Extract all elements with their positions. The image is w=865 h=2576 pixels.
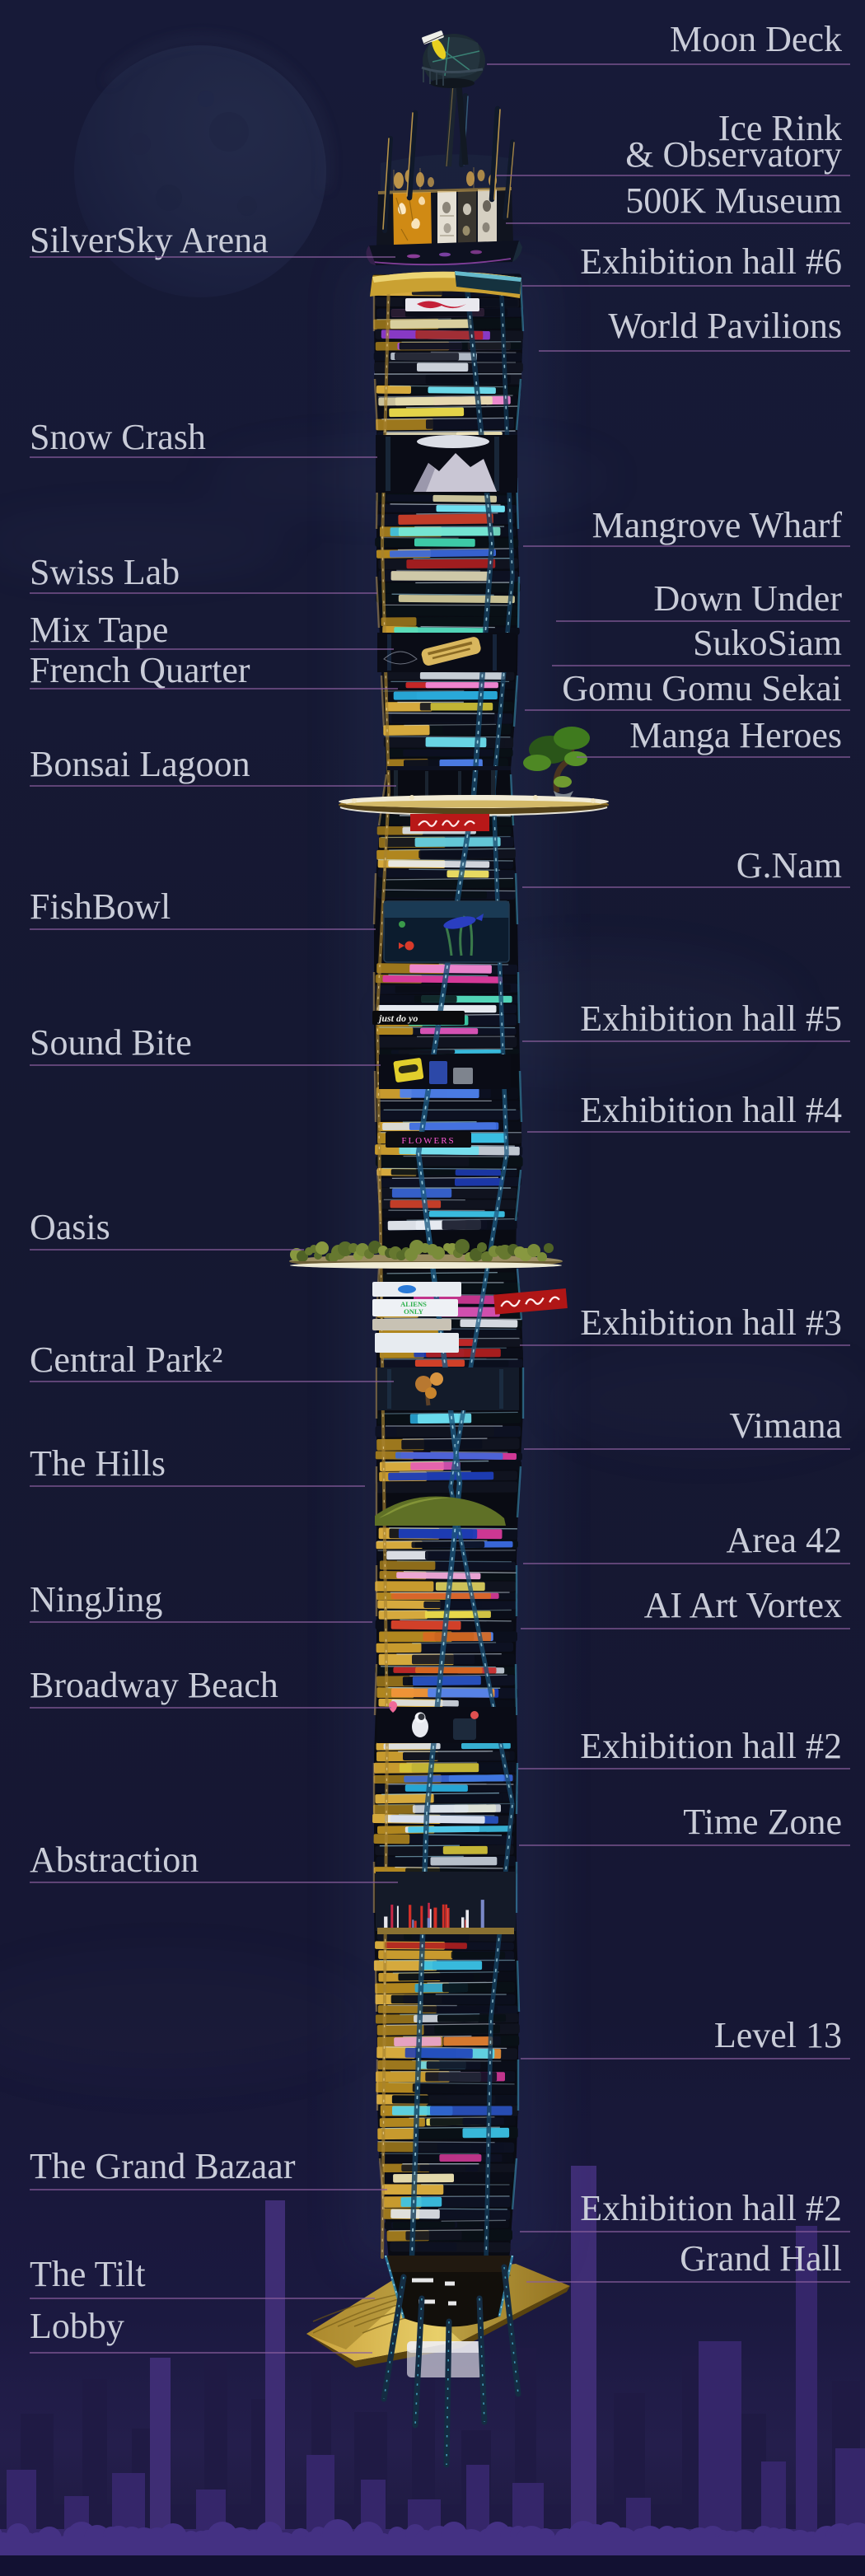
- svg-text:The Hills: The Hills: [30, 1443, 166, 1484]
- svg-text:FishBowl: FishBowl: [30, 886, 171, 927]
- svg-text:SukoSiam: SukoSiam: [693, 623, 842, 663]
- svg-text:Level 13: Level 13: [714, 2015, 842, 2055]
- svg-text:Broadway Beach: Broadway Beach: [30, 1665, 278, 1705]
- svg-text:ONLY: ONLY: [404, 1307, 423, 1316]
- svg-text:Moon Deck: Moon Deck: [670, 19, 842, 59]
- svg-text:French Quarter: French Quarter: [30, 650, 250, 690]
- svg-text:Bonsai Lagoon: Bonsai Lagoon: [30, 744, 250, 784]
- svg-text:Sound Bite: Sound Bite: [30, 1022, 192, 1063]
- svg-text:just do yo: just do yo: [377, 1012, 418, 1024]
- svg-text:SilverSky Arena: SilverSky Arena: [30, 220, 269, 260]
- svg-text:World Pavilions: World Pavilions: [608, 306, 842, 346]
- svg-text:Mangrove Wharf: Mangrove Wharf: [592, 505, 843, 545]
- svg-text:Time Zone: Time Zone: [683, 1802, 842, 1842]
- svg-text:Grand Hall: Grand Hall: [680, 2238, 842, 2279]
- svg-text:Central Park²: Central Park²: [30, 1339, 222, 1380]
- svg-text:Exhibition hall #5: Exhibition hall #5: [580, 998, 842, 1039]
- svg-text:Oasis: Oasis: [30, 1207, 110, 1247]
- svg-text:Snow Crash: Snow Crash: [30, 417, 206, 457]
- svg-text:FLOWERS: FLOWERS: [401, 1136, 455, 1146]
- svg-text:AI Art Vortex: AI Art Vortex: [644, 1585, 842, 1625]
- svg-text:Mix Tape: Mix Tape: [30, 610, 168, 650]
- svg-text:Swiss Lab: Swiss Lab: [30, 552, 180, 592]
- svg-text:The Grand Bazaar: The Grand Bazaar: [30, 2146, 296, 2186]
- svg-text:Abstraction: Abstraction: [30, 1840, 199, 1880]
- svg-text:Exhibition hall #2: Exhibition hall #2: [580, 2188, 842, 2228]
- svg-text:500K Museum: 500K Museum: [625, 180, 842, 221]
- svg-text:Lobby: Lobby: [30, 2306, 124, 2346]
- svg-text:G.Nam: G.Nam: [736, 845, 842, 886]
- svg-text:Down Under: Down Under: [653, 578, 842, 619]
- svg-text:Exhibition hall #4: Exhibition hall #4: [580, 1090, 842, 1130]
- svg-text:Exhibition hall #2: Exhibition hall #2: [580, 1726, 842, 1766]
- svg-text:Manga Heroes: Manga Heroes: [629, 715, 842, 755]
- svg-text:Gomu Gomu Sekai: Gomu Gomu Sekai: [562, 668, 842, 708]
- svg-text:Exhibition hall #6: Exhibition hall #6: [580, 241, 842, 282]
- svg-text:NingJing: NingJing: [30, 1579, 162, 1620]
- svg-text:& Observatory: & Observatory: [625, 134, 842, 175]
- svg-text:Vimana: Vimana: [729, 1405, 842, 1446]
- svg-text:Area 42: Area 42: [727, 1520, 843, 1560]
- svg-text:Exhibition hall #3: Exhibition hall #3: [580, 1302, 842, 1343]
- svg-text:The Tilt: The Tilt: [30, 2254, 146, 2294]
